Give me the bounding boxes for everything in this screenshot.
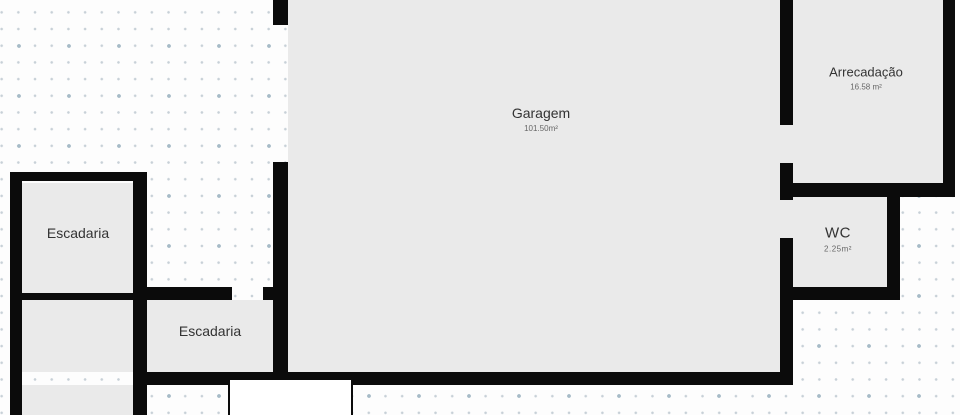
label-escadaria-lower: Escadaria [179,323,241,339]
wall-garage-right-lower [780,238,793,378]
room-name: Arrecadação [829,65,903,80]
wall-wc-bottom [780,287,900,300]
room-area: 101.50m² [512,124,570,133]
room-area: 16.58 m² [829,83,903,92]
wall-garage-left-main [273,162,288,378]
room-left-bottom [22,385,133,415]
room-left-middle [22,300,133,372]
wall-left-outer [10,172,22,415]
room-name: Escadaria [47,225,109,241]
label-escadaria-upper: Escadaria [47,225,109,241]
wall-wc-right [887,197,900,300]
stair-opening [228,378,353,415]
label-wc: WC 2.25m² [824,225,852,254]
room-garagem [288,0,793,378]
label-garagem: Garagem 101.50m² [512,105,570,133]
label-arrecadacao: Arrecadação 16.58 m² [829,65,903,92]
floor-plan-canvas: Garagem 101.50m² Arrecadação 16.58 m² WC… [0,0,960,415]
wall-garage-right-upper [780,0,793,125]
wall-lower-escadaria-top [147,287,232,300]
wall-arrecadacao-right [943,0,955,197]
room-name: Escadaria [179,323,241,339]
room-name: WC [825,225,851,242]
wall-garage-left-top [273,0,288,25]
room-area: 2.25m² [824,245,852,254]
wall-arrecadacao-bottom [780,183,955,197]
wall-escadaria-split [22,293,133,300]
room-name: Garagem [512,105,570,121]
wall-top-left [10,172,147,181]
room-arrecadacao [780,0,955,197]
